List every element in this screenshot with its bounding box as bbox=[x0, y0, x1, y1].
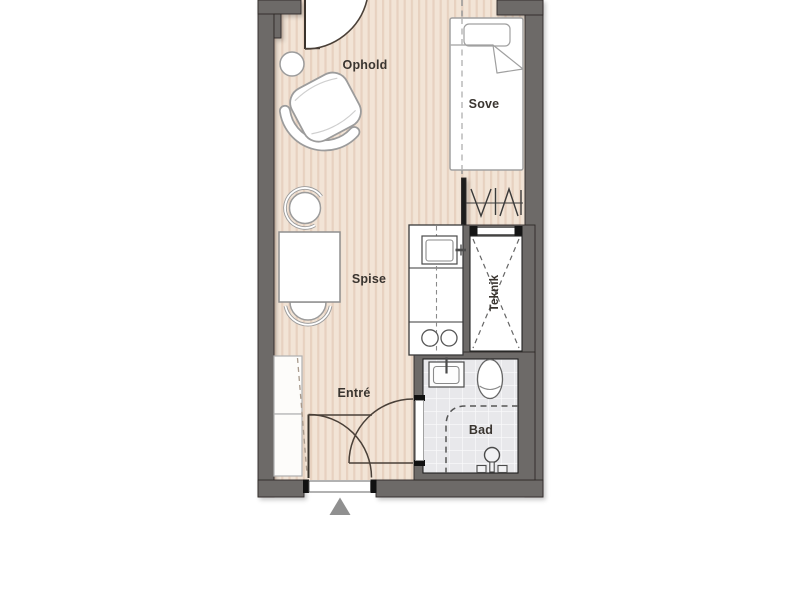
teknik-jamb-right bbox=[515, 226, 523, 236]
teknik-jamb-left bbox=[470, 226, 478, 236]
wall-top-left-stub bbox=[258, 0, 301, 14]
floor-plan-page: Teknik Bad bbox=[0, 0, 800, 600]
side-table bbox=[280, 52, 304, 76]
wardrobe-partition bbox=[462, 178, 467, 225]
teknik-hatch bbox=[477, 228, 515, 235]
teknik-room: Teknik bbox=[470, 226, 523, 351]
bed bbox=[450, 18, 523, 170]
wall-pier bbox=[274, 14, 281, 38]
room-label-spise: Spise bbox=[352, 272, 386, 286]
room-label-entre: Entré bbox=[338, 386, 371, 400]
wall-top-right-stub bbox=[497, 0, 543, 15]
front-door-threshold bbox=[309, 481, 371, 492]
floor-plan-drawing: Teknik Bad bbox=[0, 0, 800, 600]
room-label-sove: Sove bbox=[469, 97, 500, 111]
room-label-bad: Bad bbox=[469, 423, 493, 437]
bath-sink-icon bbox=[429, 358, 464, 388]
kitchenette bbox=[409, 225, 466, 355]
wall-bottom-left bbox=[258, 480, 304, 497]
entrance-marker-triangle bbox=[330, 498, 351, 516]
toilet-icon bbox=[478, 360, 503, 399]
entry-closet bbox=[274, 356, 302, 476]
room-label-ophold: Ophold bbox=[343, 58, 388, 72]
bed-pillow bbox=[464, 24, 510, 46]
dining-table bbox=[279, 232, 340, 302]
wall-left bbox=[258, 0, 274, 497]
wall-bottom-right bbox=[376, 480, 543, 497]
room-label-teknik: Teknik bbox=[489, 274, 501, 311]
